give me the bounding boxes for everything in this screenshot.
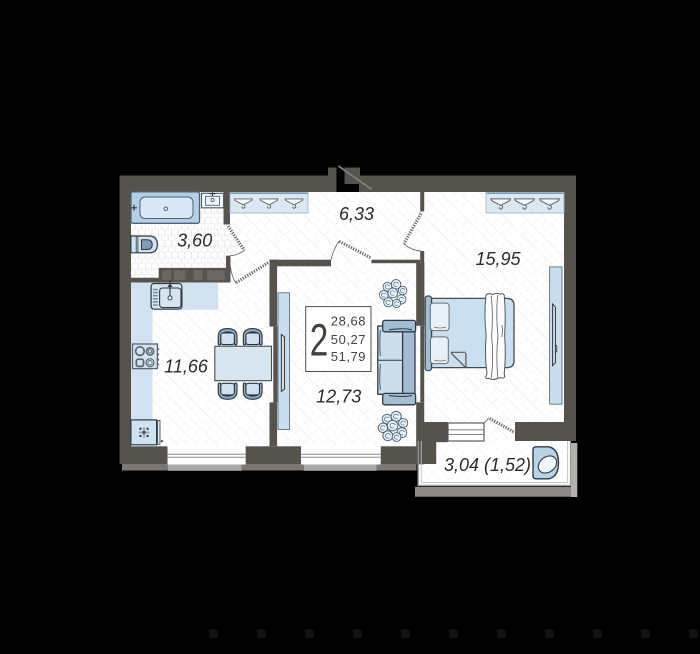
svg-text:3,04 (1,52): 3,04 (1,52)	[444, 455, 531, 475]
svg-text:15,95: 15,95	[475, 249, 521, 269]
svg-text:28,68: 28,68	[331, 314, 366, 329]
svg-text:51,79: 51,79	[331, 349, 366, 364]
svg-text:6,33: 6,33	[339, 204, 374, 224]
svg-text:11,66: 11,66	[164, 356, 209, 376]
svg-text:50,27: 50,27	[331, 332, 366, 347]
svg-text:2: 2	[310, 314, 329, 365]
svg-text:3,60: 3,60	[177, 231, 212, 251]
svg-text:12,73: 12,73	[316, 387, 361, 407]
